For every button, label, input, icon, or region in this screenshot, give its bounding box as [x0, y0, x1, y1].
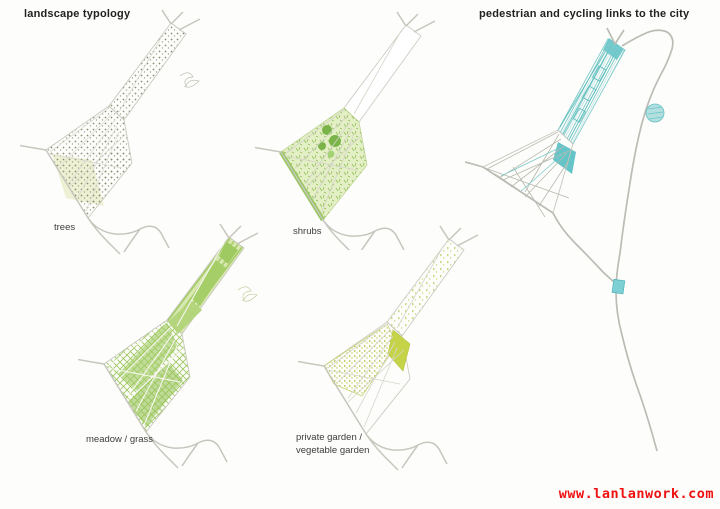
- watermark: www.lanlanwork.com: [559, 486, 714, 502]
- right-title: pedestrian and cycling links to the city: [479, 8, 689, 20]
- presentation-board: landscape typology pedestrian and cyclin…: [0, 0, 720, 509]
- meadow-label: meadow / grass: [86, 433, 153, 446]
- link-node-square: [612, 279, 625, 293]
- city-roads: [465, 28, 673, 451]
- trees-label: trees: [54, 221, 75, 234]
- trees-map: [20, 8, 250, 256]
- garden-label: private garden / vegetable garden: [296, 431, 369, 457]
- sketch-scribble-icon: [238, 287, 257, 301]
- links-fan-outline: [483, 130, 573, 213]
- garden-label-line1: private garden /: [296, 431, 369, 444]
- sketch-scribble-icon: [180, 73, 199, 87]
- shrubs-map: [255, 10, 485, 250]
- garden-label-line2: vegetable garden: [296, 444, 369, 457]
- links-map: [465, 22, 720, 462]
